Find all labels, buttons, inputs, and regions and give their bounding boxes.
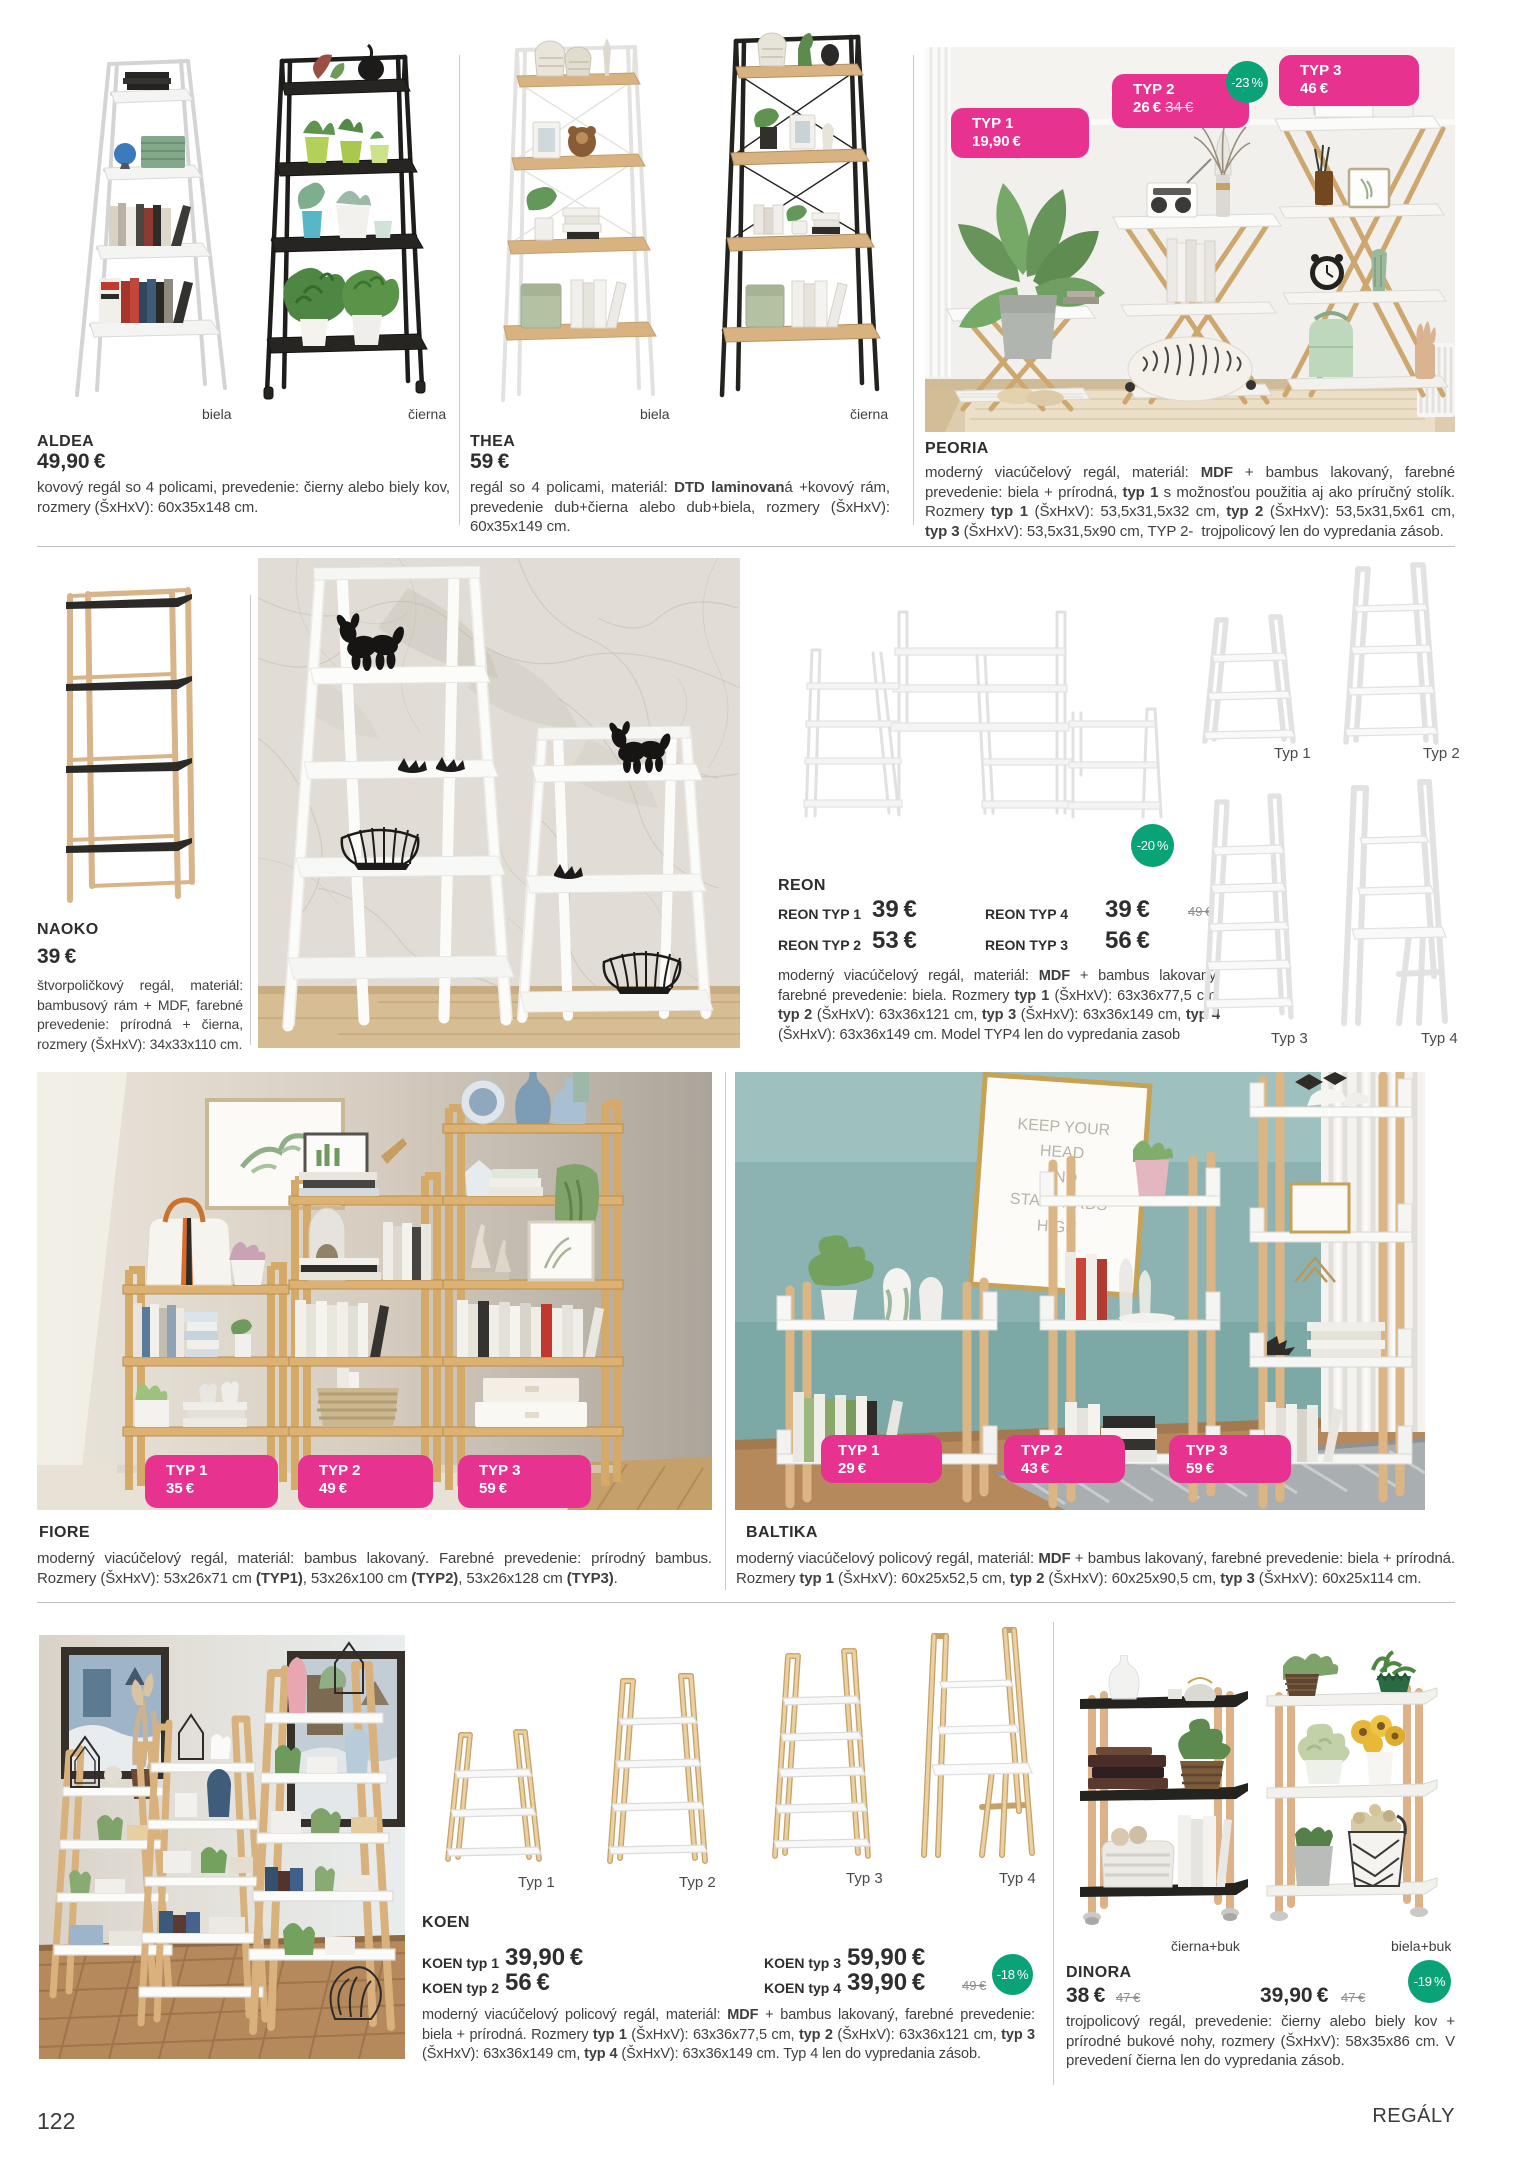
svg-text:HEAD: HEAD (1039, 1143, 1085, 1163)
